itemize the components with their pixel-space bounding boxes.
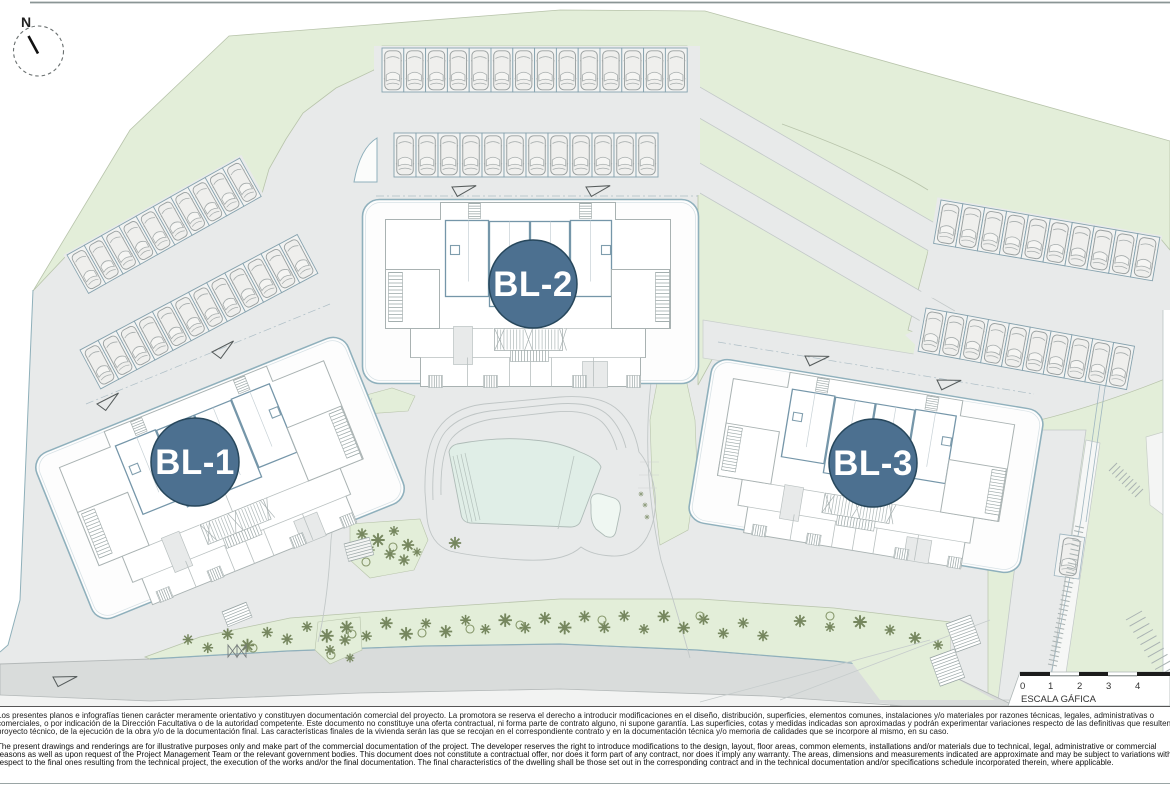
- svg-text:respect to the final ones resu: respect to the final ones resulting from…: [0, 758, 1114, 767]
- svg-text:0: 0: [1020, 681, 1025, 692]
- svg-text:1: 1: [1048, 681, 1053, 692]
- svg-text:proyecto técnico, de la ejecuc: proyecto técnico, de la ejecución de la …: [0, 727, 949, 736]
- svg-text:N: N: [21, 14, 31, 30]
- svg-text:3: 3: [1106, 681, 1111, 692]
- svg-text:BL-3: BL-3: [833, 444, 913, 483]
- svg-text:4: 4: [1135, 681, 1140, 692]
- svg-text:2: 2: [1077, 681, 1082, 692]
- svg-text:ESCALA GÁFICA: ESCALA GÁFICA: [1021, 694, 1097, 705]
- svg-text:BL-1: BL-1: [155, 443, 235, 482]
- svg-text:BL-2: BL-2: [493, 265, 573, 304]
